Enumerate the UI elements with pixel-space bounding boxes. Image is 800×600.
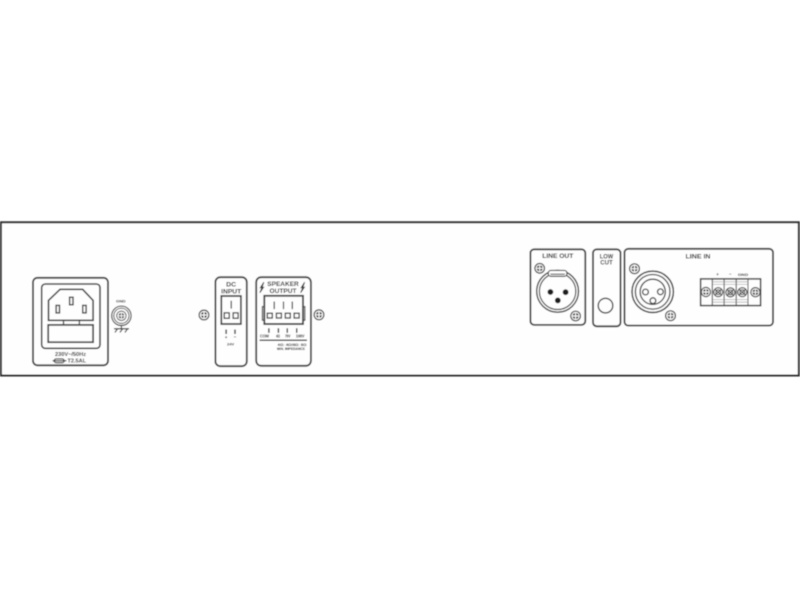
- svg-text:LINE IN: LINE IN: [686, 253, 711, 260]
- svg-text:230V~/50Hz: 230V~/50Hz: [55, 352, 86, 358]
- svg-text:+: +: [716, 272, 719, 277]
- svg-text:SPEAKER: SPEAKER: [267, 282, 299, 288]
- svg-text:DC: DC: [226, 283, 237, 289]
- svg-text:T2.5AL: T2.5AL: [68, 359, 87, 365]
- svg-text:70V: 70V: [285, 333, 291, 338]
- svg-text:GND: GND: [738, 272, 749, 277]
- svg-text:4Ω: 4Ω: [276, 333, 280, 338]
- svg-text:LINE OUT: LINE OUT: [542, 253, 573, 260]
- svg-text:GND: GND: [116, 298, 126, 303]
- svg-text:−: −: [234, 335, 237, 340]
- svg-text:CUT: CUT: [600, 260, 613, 267]
- svg-text:MIN. IMPEDANCE: MIN. IMPEDANCE: [277, 346, 305, 351]
- svg-text:+: +: [225, 335, 228, 340]
- svg-text:COM: COM: [260, 333, 269, 338]
- svg-text:INPUT: INPUT: [221, 290, 241, 296]
- svg-text:24V: 24V: [227, 342, 234, 347]
- svg-text:OUTPUT: OUTPUT: [270, 289, 297, 295]
- svg-text:−: −: [729, 272, 732, 277]
- svg-text:100V: 100V: [296, 333, 305, 338]
